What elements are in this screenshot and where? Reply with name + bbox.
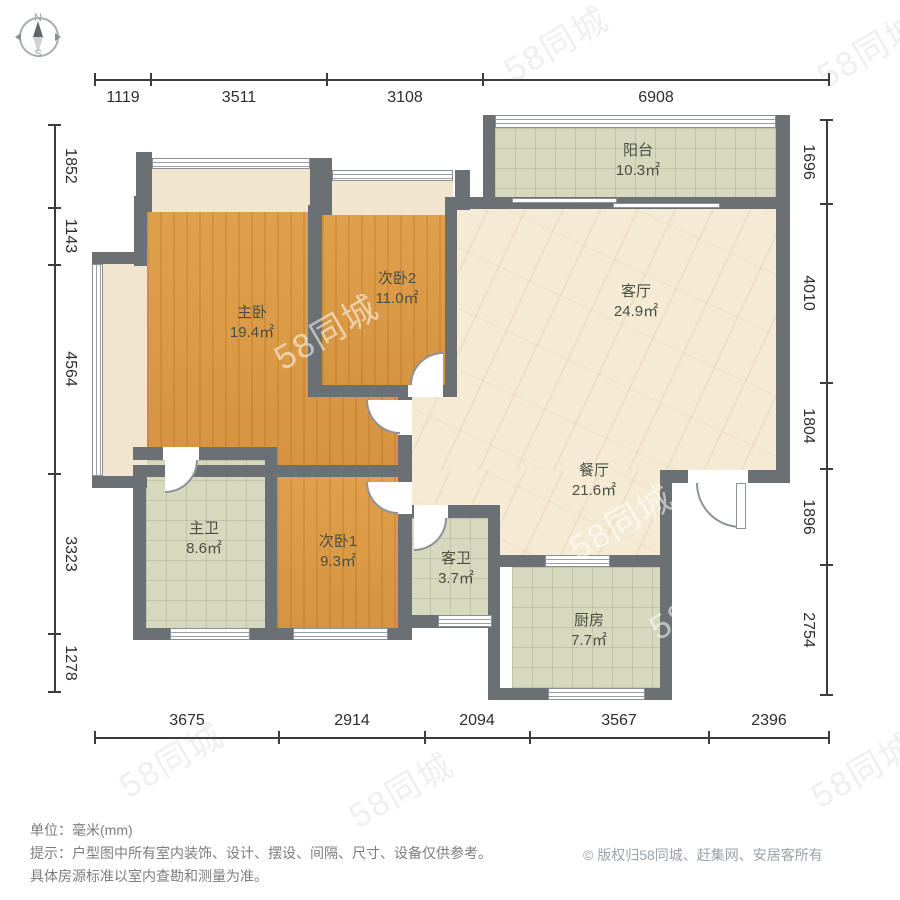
tick (94, 73, 96, 86)
bedroom2-window (332, 170, 453, 181)
tick (48, 207, 61, 209)
dimension-label: 2094 (459, 712, 495, 730)
room-area: 9.3㎡ (319, 552, 357, 572)
wall (308, 385, 408, 397)
room-name: 阳台 (616, 141, 660, 161)
balcony-label: 阳台 10.3㎡ (616, 141, 660, 181)
tick (820, 468, 833, 470)
room-name: 主卫 (186, 519, 222, 539)
wall (445, 205, 457, 397)
compass-west-arrow (15, 33, 21, 41)
dimension-label: 3511 (222, 89, 256, 107)
master-bedroom-left-baywindow (102, 264, 147, 476)
guest-bath-label: 客卫 3.7㎡ (438, 549, 474, 589)
wall (133, 447, 163, 460)
room-name: 客卫 (438, 549, 474, 569)
floorplan-page: N S (0, 0, 900, 900)
compass-south-label: S (34, 48, 41, 60)
room-name: 次卧2 (375, 269, 418, 289)
guest-bath-door-opening (414, 505, 448, 518)
tick (529, 731, 531, 744)
tick (820, 382, 833, 384)
wall (92, 252, 147, 264)
wall (660, 470, 688, 483)
watermark: 58同城 (493, 0, 616, 92)
wall (199, 447, 277, 460)
wall (443, 385, 457, 397)
tick (278, 731, 280, 744)
room-area: 8.6㎡ (186, 539, 222, 559)
entry-door-opening (688, 470, 748, 483)
tick (482, 73, 484, 86)
room-area: 19.4㎡ (230, 323, 274, 343)
wall (133, 476, 146, 640)
dimension-label: 3323 (61, 536, 79, 572)
dimension-label: 2914 (334, 712, 370, 730)
master-bedroom-side-window (92, 264, 103, 476)
dining-room-label: 餐厅 21.6㎡ (572, 461, 616, 501)
room-name: 客厅 (614, 282, 658, 302)
wall (265, 460, 277, 640)
room-area: 11.0㎡ (375, 289, 418, 309)
balcony-window (495, 115, 776, 128)
wall (483, 115, 495, 205)
dimension-label: 4010 (799, 275, 817, 311)
bedroom2-baywindow (332, 180, 453, 215)
wall (660, 470, 672, 700)
dimension-label: 3108 (387, 89, 423, 107)
tick (828, 73, 830, 86)
dimension-label: 1696 (799, 144, 817, 180)
dimension-label: 2396 (751, 712, 787, 730)
dimension-label: 4564 (61, 351, 79, 387)
balcony-sliding-door (613, 203, 720, 208)
tick (326, 73, 328, 86)
watermark: 58同城 (800, 718, 900, 817)
room-area: 21.6㎡ (572, 481, 616, 501)
kitchen-window (548, 688, 645, 700)
guest-bath-window (438, 615, 492, 627)
master-bedroom-window (152, 158, 310, 169)
tick (708, 731, 710, 744)
dimension-label: 1278 (61, 645, 79, 681)
watermark: 58同城 (338, 738, 461, 837)
tick (94, 731, 96, 744)
master-bath-label: 主卫 8.6㎡ (186, 519, 222, 559)
kitchen-label: 厨房 7.7㎡ (571, 611, 607, 651)
disclaimer-line2: 具体房源标准以室内查勘和测量为准。 (30, 866, 268, 886)
tick (48, 633, 61, 635)
tick (820, 564, 833, 566)
balcony-sliding-door (512, 198, 617, 203)
wall (308, 205, 322, 397)
tick (48, 473, 61, 475)
compass-needle-north (33, 21, 43, 37)
room-name: 餐厅 (572, 461, 616, 481)
disclaimer-line1: 提示：户型图中所有室内装饰、设计、摆设、间隔、尺寸、设备仅供参考。 (30, 843, 492, 863)
top-dimension-line (95, 79, 830, 81)
room-name: 次卧1 (319, 532, 357, 552)
tick (150, 73, 152, 86)
copyright-notice: © 版权归58同城、赶集网、安居客所有 (583, 845, 823, 865)
bottom-dimension-line (95, 737, 830, 739)
dimension-label: 1804 (799, 408, 817, 444)
tick (820, 694, 833, 696)
master-bath-window (170, 628, 250, 640)
left-dimension-line (54, 125, 56, 692)
tick (820, 203, 833, 205)
right-dimension-line (826, 120, 828, 695)
unit-note: 单位：毫米(mm) (30, 820, 133, 840)
master-bedroom-label: 主卧 19.4㎡ (230, 303, 274, 343)
master-bedroom-baywindow (152, 168, 310, 212)
room-area: 3.7㎡ (438, 569, 474, 589)
room-area: 24.9㎡ (614, 302, 658, 322)
bedroom1-label: 次卧1 9.3㎡ (319, 532, 357, 572)
tick (48, 691, 61, 693)
dimension-label: 3567 (601, 712, 637, 730)
wall (776, 115, 790, 476)
dimension-label: 3675 (169, 712, 205, 730)
copyright-icon: © (583, 847, 593, 863)
dimension-label: 1852 (61, 148, 79, 184)
copyright-text: 版权归58同城、赶集网、安居客所有 (597, 847, 823, 863)
dimension-label: 6908 (638, 89, 674, 107)
bedroom1-door-opening (398, 482, 412, 514)
bedroom2-door-opening (408, 385, 443, 397)
compass-east-arrow (55, 33, 61, 41)
master-bath-door-opening (163, 447, 199, 460)
entry-door-panel (736, 483, 746, 529)
room-area: 7.7㎡ (571, 631, 607, 651)
bedroom2-label: 次卧2 11.0㎡ (375, 269, 418, 309)
tick (820, 119, 833, 121)
room-area: 10.3㎡ (616, 161, 660, 181)
dimension-label: 1896 (799, 499, 817, 535)
dimension-label: 1119 (106, 89, 139, 107)
kitchen-pass-window (545, 555, 610, 567)
compass: N S (14, 10, 62, 68)
entry-door-arc (696, 483, 741, 528)
master-bedroom-door-opening (398, 400, 412, 435)
dimension-label: 2754 (799, 612, 817, 648)
watermark: 58同城 (806, 0, 900, 98)
bedroom1-window (293, 628, 388, 640)
room-name: 厨房 (571, 611, 607, 631)
living-room-label: 客厅 24.9㎡ (614, 282, 658, 322)
tick (828, 731, 830, 744)
tick (424, 731, 426, 744)
living-room-floor (412, 209, 776, 470)
tick (48, 124, 61, 126)
room-name: 主卧 (230, 303, 274, 323)
wall (488, 505, 500, 700)
tick (48, 264, 61, 266)
dimension-label: 1143 (61, 219, 79, 253)
